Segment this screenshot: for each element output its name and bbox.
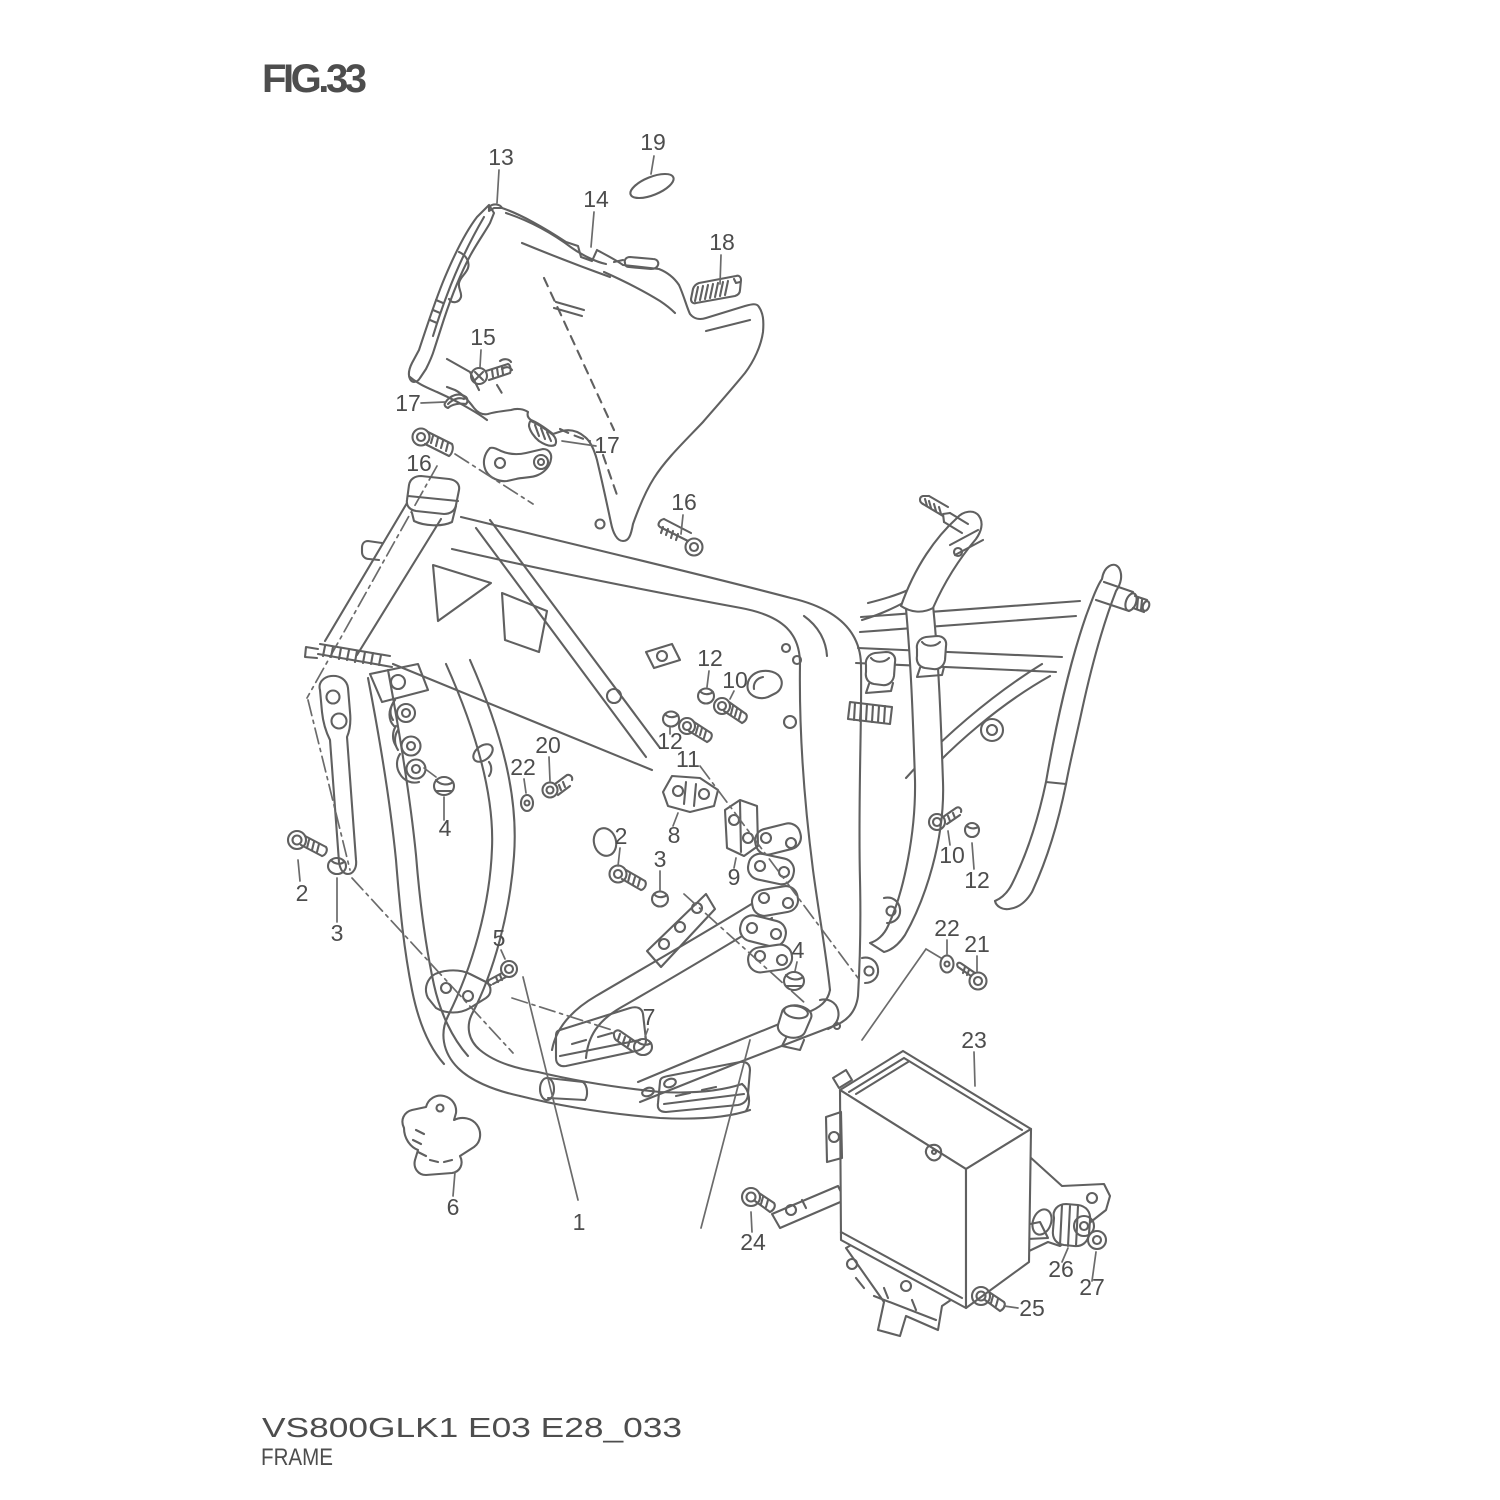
svg-text:FRAME: FRAME — [261, 1444, 333, 1471]
svg-text:11: 11 — [676, 746, 700, 772]
svg-text:24: 24 — [740, 1229, 766, 1255]
svg-text:18: 18 — [709, 229, 735, 255]
svg-text:3: 3 — [331, 920, 344, 946]
svg-text:7: 7 — [643, 1004, 656, 1030]
svg-text:21: 21 — [964, 931, 990, 957]
svg-text:16: 16 — [671, 489, 697, 515]
svg-text:26: 26 — [1048, 1256, 1074, 1282]
svg-text:5: 5 — [493, 925, 506, 951]
svg-text:25: 25 — [1019, 1295, 1045, 1321]
svg-text:23: 23 — [961, 1027, 987, 1053]
svg-text:15: 15 — [470, 324, 496, 350]
svg-text:2: 2 — [615, 823, 628, 849]
svg-text:16: 16 — [406, 450, 432, 476]
svg-text:1: 1 — [573, 1209, 586, 1235]
svg-text:4: 4 — [439, 815, 452, 841]
svg-text:17: 17 — [395, 390, 421, 416]
svg-text:17: 17 — [594, 432, 620, 458]
svg-text:12: 12 — [964, 867, 990, 893]
svg-text:8: 8 — [668, 822, 681, 848]
svg-text:19: 19 — [640, 129, 666, 155]
svg-text:12: 12 — [697, 645, 723, 671]
svg-text:22: 22 — [934, 915, 960, 941]
svg-text:10: 10 — [722, 667, 748, 693]
svg-text:6: 6 — [447, 1194, 460, 1220]
svg-text:FIG.33: FIG.33 — [262, 57, 367, 101]
svg-text:2: 2 — [296, 880, 309, 906]
svg-text:22: 22 — [510, 754, 536, 780]
svg-text:13: 13 — [488, 144, 514, 170]
svg-text:3: 3 — [654, 846, 667, 872]
svg-text:20: 20 — [535, 732, 561, 758]
svg-text:10: 10 — [939, 842, 965, 868]
svg-text:VS800GLK1 E03 E28_033: VS800GLK1 E03 E28_033 — [262, 1412, 682, 1443]
svg-text:4: 4 — [792, 937, 805, 963]
svg-text:14: 14 — [583, 186, 609, 212]
